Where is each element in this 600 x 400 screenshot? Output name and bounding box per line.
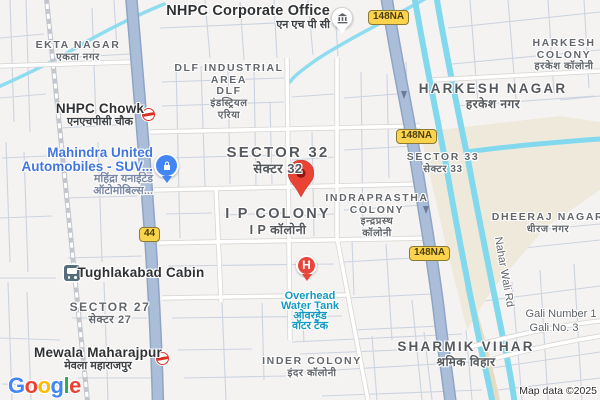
poi-label-nhpc-chowk[interactable]: NHPC Chowk एनएचपीसी चौक [56,102,144,128]
logo-letter: G [8,373,25,398]
business-label-mahindra[interactable]: Mahindra United Automobiles - SUV... महि… [0,146,153,197]
locality-label-dlf-industrial-area: DLF INDUSTRIAL AREA DLF इंडस्ट्रियल एरिय… [174,63,283,121]
poi-label-mewala-maharajpur[interactable]: Mewala Maharajpur मेवला महाराजपुर [34,346,162,372]
locality-label-sector-32: SECTOR 32 सेक्टर 32 [227,145,330,175]
locality-label-sharmik-vihar: SHARMIK VIHAR श्रमिक विहार [397,340,534,368]
poi-label-tughlakabad-cabin[interactable]: Tughlakabad Cabin [78,266,205,280]
logo-letter: g [51,373,64,398]
poi-label-nhpc-office[interactable]: NHPC Corporate Office एन एच पी सी [160,4,330,31]
road-label-gali-number-1: Gali Number 1 [526,309,597,320]
highway-badge-148na: 148NA [409,246,450,261]
business-pin[interactable] [154,153,179,183]
nhpc-office-pin[interactable] [331,7,353,34]
locality-label-sector-33: SECTOR 33 सेक्टर 33 [407,152,480,175]
map-canvas[interactable]: 148NA 148NA 148NA 44 H NHPC Corporate Of… [0,0,600,400]
locality-label-indraprastha-colony: INDRAPRASTHA COLONY इन्द्रप्रस्थ कॉलोनी [325,193,428,239]
locality-label-harkesh-nagar: HARKESH NAGAR हरकेश नगर [419,82,568,110]
locality-label-harkesh-colony: HARKESH COLONY हरकेश कॉलोनी [532,38,595,72]
poi-label-overhead-water-tank[interactable]: Overhead Water Tank ओवरहेड वॉटर टैंक [281,291,339,331]
logo-letter: o [38,373,51,398]
logo-letter: e [69,373,81,398]
bank-building-icon [336,12,349,25]
road-label-gali-no-3: Gali No. 3 [530,323,579,334]
highway-badge-44: 44 [139,227,160,242]
locality-label-dheeraj-nagar: DHEERAJ NAGAR धीरज नगर [492,212,600,235]
locality-label-sector-27: SECTOR 27 सेक्टर 27 [70,301,151,326]
map-attribution: Map data ©2025 [519,385,597,397]
highway-badge-148na: 148NA [396,129,437,144]
locality-label-ekta-nagar: EKTA NAGAR एकता नगर [36,40,121,63]
locality-label-inder-colony: INDER COLONY इंदर कॉलोनी [262,356,362,379]
google-logo[interactable]: Google [8,373,81,399]
highway-badge-148na: 148NA [368,10,409,25]
hospital-pin[interactable]: H [296,255,318,281]
logo-letter: o [25,373,38,398]
locality-label-ip-colony: I P COLONY I P कॉलोनी [225,207,331,236]
lock-icon [161,160,173,172]
hospital-letter: H [296,255,317,276]
